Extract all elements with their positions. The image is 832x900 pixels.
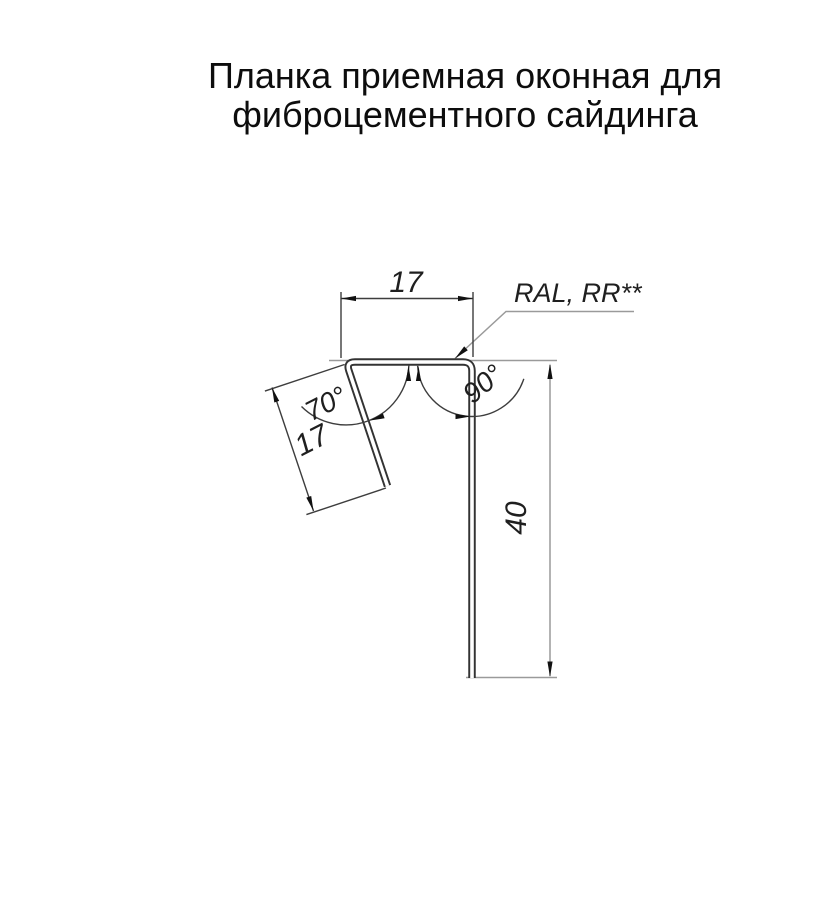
dim-top-width-label: 17 bbox=[389, 266, 424, 299]
top-dim-arrow-left bbox=[341, 296, 356, 301]
dim-height-label: 40 bbox=[500, 501, 533, 535]
coating-leader-arrow bbox=[455, 346, 468, 358]
arrowheads bbox=[272, 296, 553, 677]
angle-left-label: 70° bbox=[300, 380, 352, 427]
coating-leader-line bbox=[455, 312, 634, 359]
angle-70-arrow-flange bbox=[406, 366, 411, 381]
leg-dim-arrow-bottom bbox=[306, 496, 313, 511]
leg-dim-arrow-top bbox=[272, 388, 279, 403]
top-dim-arrow-right bbox=[458, 296, 473, 301]
height-dim-arrow-top bbox=[547, 364, 552, 380]
coating-label: RAL, RR** bbox=[514, 278, 643, 308]
profile-outline bbox=[348, 362, 472, 678]
angle-90-arrow-flange bbox=[416, 366, 421, 381]
leg-dim-ext-bottom bbox=[306, 488, 386, 515]
page: Планка приемная оконная для фиброцементн… bbox=[0, 0, 832, 900]
height-dim-arrow-bottom bbox=[547, 662, 552, 678]
angle-70-arrow-leg bbox=[370, 413, 385, 420]
technical-drawing: 17 40 17 70° 90° RAL, RR** bbox=[0, 0, 832, 900]
